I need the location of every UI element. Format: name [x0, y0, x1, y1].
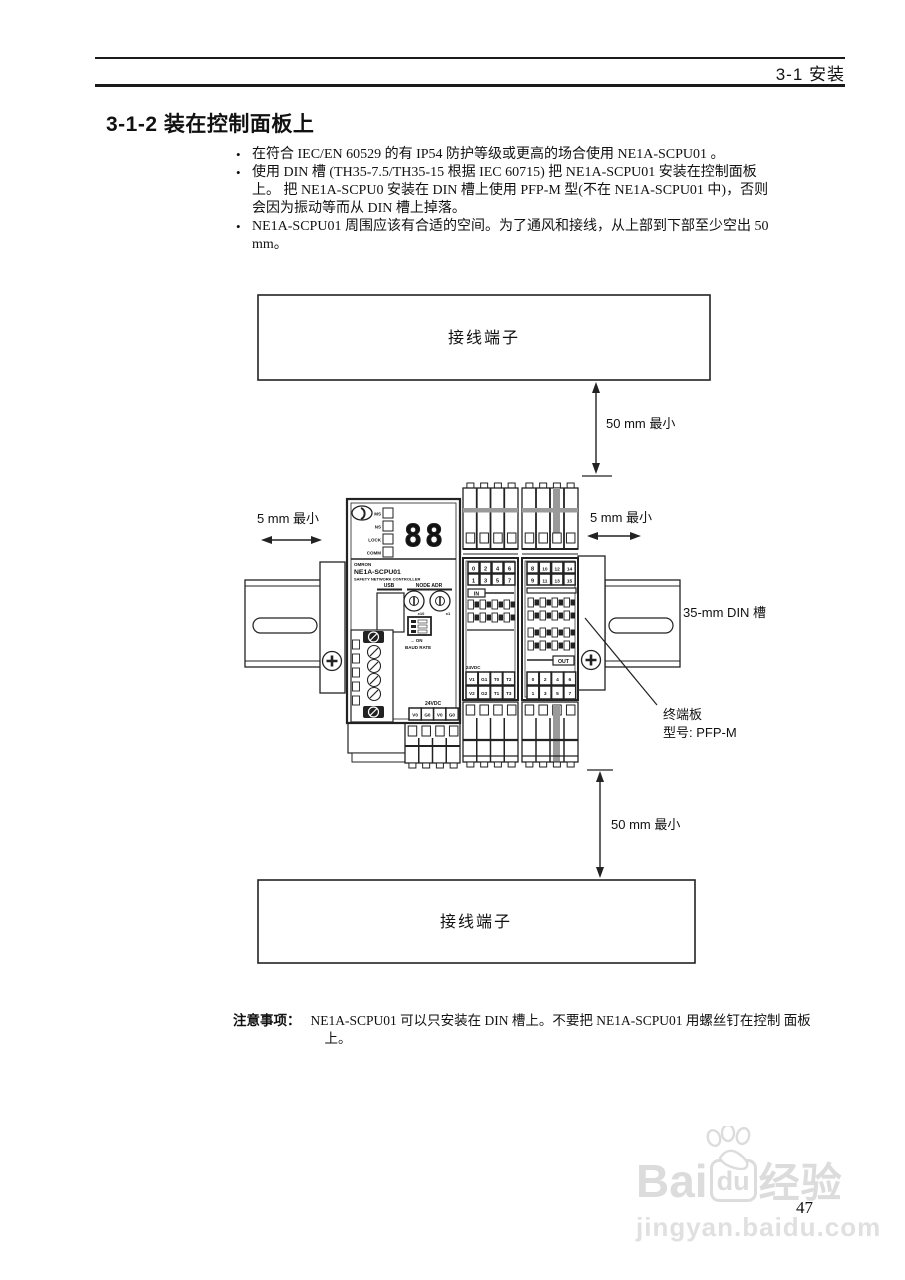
baud-rate-label: BAUD RATE: [405, 645, 431, 650]
module-b-out: 7: [568, 691, 571, 697]
header-section-label: 3-1 安装: [776, 60, 845, 85]
header-rule-bottom: [95, 84, 845, 87]
dimension-left-label: 5 mm 最小: [257, 511, 319, 526]
bullet-marker: •: [236, 218, 252, 254]
bullet-text: 会因为振动等而从 DIN 槽上掉落。: [252, 200, 768, 218]
bullet-marker: •: [236, 164, 252, 218]
din-rail-right: [605, 580, 680, 667]
installation-diagram: 接线端子 50 mm 最小: [230, 285, 860, 985]
module-b-num: 11: [542, 579, 547, 585]
dimension-left-5mm: 5 mm 最小: [257, 511, 322, 544]
module-b-num: 13: [555, 579, 561, 585]
node-address-dial-x10: [404, 591, 424, 611]
terminal-duct-bottom-label: 接线端子: [440, 913, 512, 931]
module-a-tab-label: IN: [474, 592, 479, 598]
list-item: • 在符合 IEC/EN 60529 的有 IP54 防护等级或更高的场合使用 …: [236, 146, 848, 164]
ns-led: [383, 521, 393, 531]
comm-led: [383, 547, 393, 557]
power-term: V0: [412, 713, 418, 718]
module-a-term: T1: [494, 691, 500, 696]
module-b-out: 2: [544, 677, 547, 683]
dial-label: x1: [446, 611, 451, 616]
seven-segment-display: 88: [404, 519, 446, 554]
module-a-num: 5: [496, 579, 499, 585]
node-adr-label: NODE ADR: [416, 583, 443, 589]
dip-on-label: → ON: [410, 638, 423, 643]
module-a-term: V1: [469, 677, 475, 682]
dimension-bottom-50mm: 50 mm 最小: [587, 770, 680, 878]
module-b-num: 10: [542, 567, 548, 573]
module-a-vdc-label: 24VDC: [466, 665, 481, 670]
module-a-term: V2: [469, 691, 475, 696]
list-item: • 使用 DIN 槽 (TH35-7.5/TH35-15 根据 IEC 6071…: [236, 164, 848, 218]
usb-label: USB: [384, 583, 395, 589]
module-a-num: 2: [484, 567, 487, 573]
module-b-out: 1: [532, 691, 535, 697]
paw-icon: [702, 1126, 760, 1170]
module-b-out: 6: [568, 677, 571, 683]
din-rail-left: [245, 580, 322, 667]
led-label: NS: [375, 525, 381, 530]
ms-led: [383, 508, 393, 518]
bullet-text: 在符合 IEC/EN 60529 的有 IP54 防护等级或更高的场合使用 NE…: [252, 146, 725, 164]
din-rail-label: 35-mm DIN 槽: [683, 605, 766, 620]
ne1a-controller: MS NS LOCK COMM 88 OMRON NE1A-SCPU01 SAF…: [347, 499, 460, 723]
module-b-out: 0: [532, 677, 535, 683]
module-a-term: G2: [481, 691, 488, 696]
dimension-right-label: 5 mm 最小: [590, 510, 652, 525]
main-unit-lower: [348, 723, 460, 768]
power-term: V0: [437, 713, 443, 718]
module-b-num: 8: [531, 567, 534, 573]
module-a-num: 3: [484, 579, 487, 585]
node-address-dial-x1: [430, 591, 450, 611]
bullet-marker: •: [236, 146, 252, 164]
terminal-duct-top-label: 接线端子: [448, 329, 520, 347]
watermark: Bai du 经验 jingyan.baidu.com: [636, 1142, 856, 1243]
module-b-out: 3: [544, 691, 547, 697]
module-b-num: 14: [567, 567, 573, 573]
dimension-top-label: 50 mm 最小: [606, 416, 675, 431]
dimension-top-50mm: 50 mm 最小: [582, 382, 675, 476]
module-a-term: T2: [506, 677, 512, 682]
module-a-num: 7: [508, 579, 511, 585]
module-b-tab-label: OUT: [558, 659, 570, 665]
bullet-text: mm。: [252, 236, 768, 254]
mounting-bracket-right: [578, 556, 605, 690]
bullet-list: • 在符合 IEC/EN 60529 的有 IP54 防护等级或更高的场合使用 …: [236, 146, 848, 254]
power-term: G0: [424, 713, 431, 718]
mounting-bracket-left: [320, 562, 345, 693]
terminal-duct-top: 接线端子: [258, 295, 710, 380]
watermark-url: jingyan.baidu.com: [636, 1212, 856, 1243]
lock-led: [383, 534, 393, 544]
module-b-out: 4: [556, 677, 559, 683]
page-title: 3-1-2 装在控制面板上: [106, 108, 314, 138]
led-label: LOCK: [368, 538, 381, 543]
terminal-duct-bottom: 接线端子: [258, 880, 695, 963]
power-term: G0: [449, 713, 456, 718]
note-block: 注意事项： NE1A-SCPU01 可以只安装在 DIN 槽上。不要把 NE1A…: [233, 1012, 845, 1048]
page-number: 47: [796, 1198, 813, 1218]
module-a-num: 6: [508, 567, 511, 573]
module-a-num: 0: [472, 567, 475, 573]
dimension-bottom-label: 50 mm 最小: [611, 817, 680, 832]
end-plate-label-1: 终端板: [663, 707, 702, 722]
manual-page: 3-1 安装 3-1-2 装在控制面板上 • 在符合 IEC/EN 60529 …: [0, 0, 905, 1280]
io-module-b: 8 10 12 14 9 11 13 15 OUT 0 2: [522, 558, 578, 700]
io-module-a: 0 2 4 6 1 3 5 7 IN 24VDC V1 G1 T0: [463, 558, 518, 700]
module-b-num: 12: [555, 567, 561, 573]
module-b-num: 15: [567, 579, 573, 585]
bullet-text: 上。 把 NE1A-SCPU0 安装在 DIN 槽上使用 PFP-M 型(不在 …: [252, 182, 768, 200]
watermark-brand: Bai: [636, 1158, 708, 1204]
module-a-term: G1: [481, 677, 488, 682]
led-label: MS: [374, 512, 381, 517]
module-a-term: T0: [494, 677, 500, 682]
screw-icon: [582, 651, 601, 670]
list-item: • NE1A-SCPU01 周围应该有合适的空间。为了通风和接线，从上部到下部至…: [236, 218, 848, 254]
dimension-right-5mm: 5 mm 最小: [587, 510, 652, 540]
header-rule-top: [95, 57, 845, 59]
power-vdc-label: 24VDC: [425, 701, 442, 707]
dial-label: x10: [418, 611, 425, 616]
bullet-text: NE1A-SCPU01 周围应该有合适的空间。为了通风和接线，从上部到下部至少空…: [252, 218, 768, 236]
end-plate-label-2: 型号: PFP-M: [663, 725, 737, 740]
note-text: 上。: [311, 1030, 811, 1048]
module-b-out: 5: [556, 691, 559, 697]
brand-label: OMRON: [354, 562, 371, 567]
module-a-num: 1: [472, 579, 475, 585]
note-text: NE1A-SCPU01 可以只安装在 DIN 槽上。不要把 NE1A-SCPU0…: [311, 1012, 811, 1030]
screw-icon: [323, 652, 342, 671]
bullet-text: 使用 DIN 槽 (TH35-7.5/TH35-15 根据 IEC 60715)…: [252, 164, 768, 182]
module-a-term: T3: [506, 691, 512, 696]
led-label: COMM: [367, 551, 381, 556]
note-label: 注意事项：: [233, 1012, 301, 1048]
module-b-num: 9: [531, 579, 534, 585]
model-label: NE1A-SCPU01: [354, 569, 401, 576]
type-label: SAFETY NETWORK CONTROLLER: [354, 577, 420, 582]
usb-port: [377, 593, 404, 632]
